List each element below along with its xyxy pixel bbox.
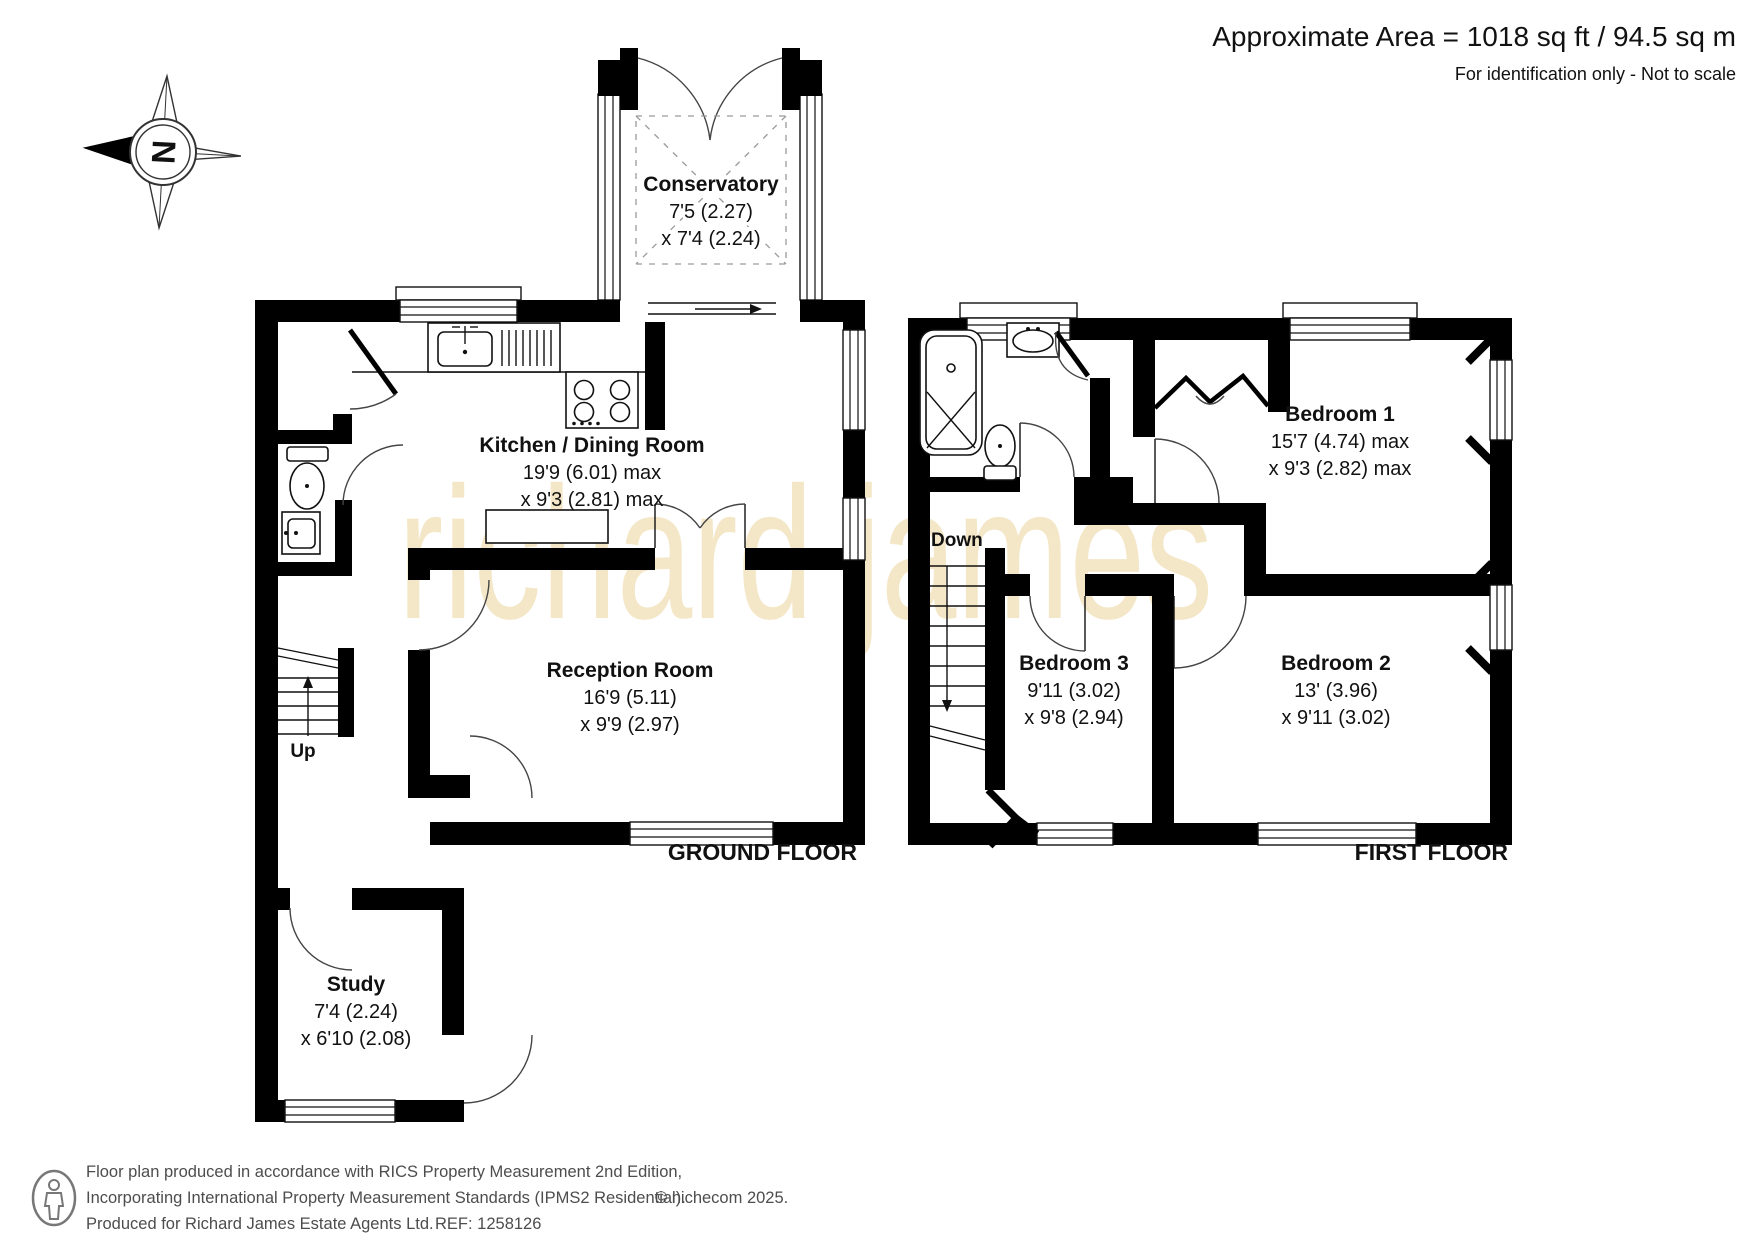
sink-icon [1007,323,1059,357]
reception-room: Reception Room 16'9 (5.11) x 9'9 (2.97) [547,659,714,736]
door-swing-arc [638,58,710,140]
window [1283,303,1417,318]
window [1290,318,1410,340]
room-dimension: x 9'9 (2.97) [580,714,679,736]
sink-icon [282,512,320,554]
room-label: Kitchen / Dining Room [479,434,704,457]
person-icon [33,1171,75,1225]
study-room: Study 7'4 (2.24) x 6'10 (2.08) [301,973,412,1050]
room-dimension: x 6'10 (2.08) [301,1028,412,1050]
scale-note-text: For identification only - Not to scale [1455,64,1736,84]
window [396,287,521,300]
bathtub-icon [920,330,982,455]
door-swing-arc [710,58,782,140]
room-dimension: 13' (3.96) [1294,680,1378,702]
room-dimension: 7'4 (2.24) [314,1001,398,1023]
room-dimension: x 9'3 (2.81) max [521,489,664,511]
room-label: Reception Room [547,659,714,682]
room-dimension: 19'9 (6.01) max [523,462,661,484]
compass-icon: N [81,72,245,232]
window [800,94,822,300]
room-label: Bedroom 1 [1285,403,1395,426]
ground-floor-label: GROUND FLOOR [668,839,857,865]
footer: Floor plan produced in accordance with R… [33,1163,788,1233]
approximate-area-text: Approximate Area = 1018 sq ft / 94.5 sq … [1212,21,1736,52]
ground-floor-walls [255,300,865,1122]
stairs-label: Down [931,530,983,551]
window [285,1100,395,1122]
room-dimension: x 9'8 (2.94) [1024,707,1123,729]
step-threshold [648,303,776,314]
footer-line-1: Floor plan produced in accordance with R… [86,1163,682,1181]
toilet-icon [984,425,1016,480]
room-dimension: 15'7 (4.74) max [1271,431,1409,453]
window [1490,360,1512,440]
room-dimension: 16'9 (5.11) [583,687,677,709]
footer-copyright: © nichecom 2025. [655,1189,788,1207]
header: Approximate Area = 1018 sq ft / 94.5 sq … [1212,21,1736,84]
door-swing-arc [343,445,403,505]
stairs-label: Up [290,741,315,762]
dining-table [486,510,608,543]
door-swing-arc [464,1035,532,1103]
stove-icon [566,372,638,428]
window [843,330,865,430]
bedroom-1-room: Bedroom 1 15'7 (4.74) max x 9'3 (2.82) m… [1269,403,1412,480]
window [1037,823,1113,845]
footer-line-2: Incorporating International Property Mea… [86,1189,686,1207]
door-swing-arc [350,394,396,409]
footer-ref: REF: 1258126 [435,1215,541,1233]
room-label: Bedroom 2 [1281,652,1391,675]
stairs-up-icon: Up [278,648,338,762]
door-swing-arc [470,736,532,798]
window [400,300,517,322]
bedroom-3-room: Bedroom 3 9'11 (3.02) x 9'8 (2.94) [1019,652,1129,729]
conservatory-room: Conservatory 7'5 (2.27) x 7'4 (2.24) [598,48,822,314]
room-label: Bedroom 3 [1019,652,1129,675]
wc-fixtures [282,447,328,554]
room-dimension: 9'11 (3.02) [1027,680,1121,702]
window [1490,585,1512,650]
room-label: Conservatory [643,173,779,196]
room-dimension: 7'5 (2.27) [669,201,753,223]
window-splays [1468,338,1492,672]
room-dimension: x 9'11 (3.02) [1281,707,1390,729]
sink-icon [428,323,560,372]
toilet-icon [287,447,328,509]
room-dimension: x 7'4 (2.24) [661,228,760,250]
floor-plan-canvas: richard james Approximate Area = 1018 sq… [0,0,1755,1241]
footer-line-3: Produced for Richard James Estate Agents… [86,1215,434,1233]
compass-north-letter: N [144,139,182,165]
first-floor-label: FIRST FLOOR [1355,839,1509,865]
window [843,498,865,560]
room-dimension: x 9'3 (2.82) max [1269,458,1412,480]
window [598,94,620,300]
room-label: Study [327,973,386,996]
window [960,303,1077,318]
door-swing-arc [290,908,352,970]
closet-bifold-doors [1155,376,1268,408]
bedroom-2-room: Bedroom 2 13' (3.96) x 9'11 (3.02) [1281,652,1391,729]
